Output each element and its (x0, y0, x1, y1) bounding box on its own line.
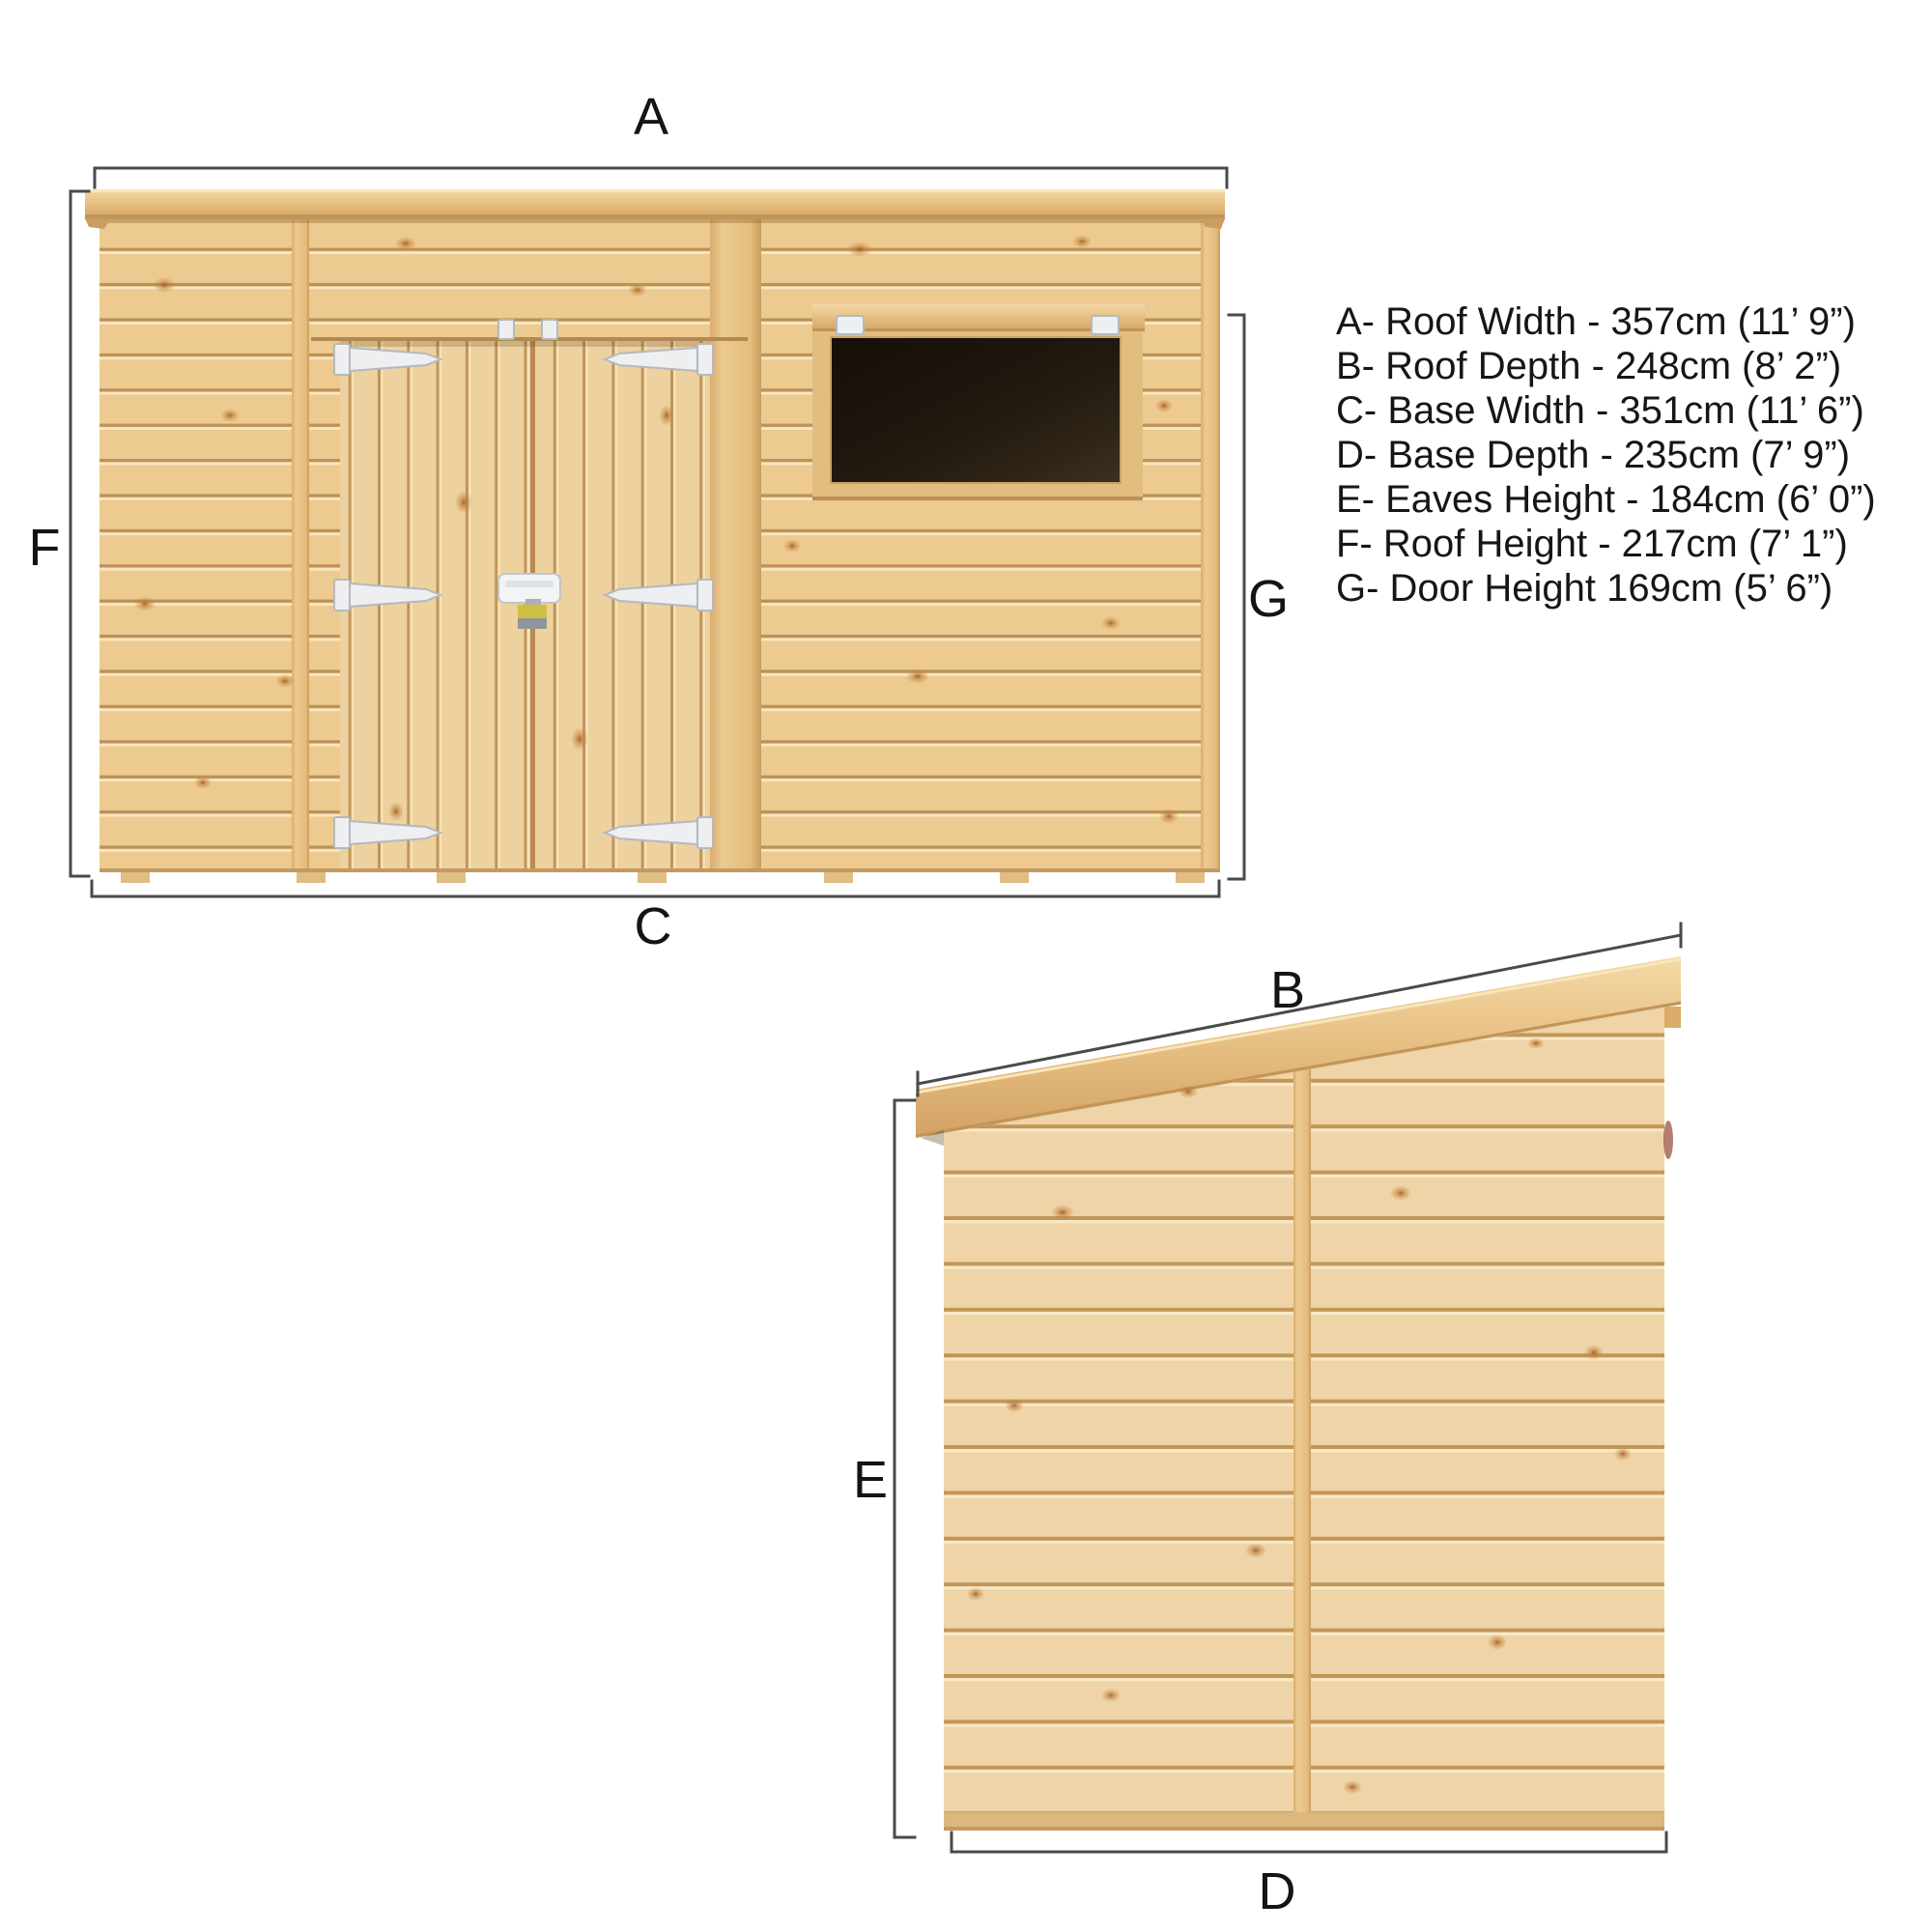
side-roof-right-endcap (1664, 1007, 1681, 1028)
front-cladding-above-doors (340, 218, 710, 340)
label-d: D (1259, 1862, 1296, 1920)
shed-dimension-diagram: A F C G (0, 0, 1932, 1932)
dimension-line-c (92, 881, 1219, 896)
front-left-jamb-trim (292, 218, 309, 872)
fascia-bottom-edge (85, 214, 1225, 219)
legend-line-door-height: G- Door Height 169cm (5’ 6”) (1336, 567, 1833, 610)
padlock-body-grey (518, 618, 547, 629)
door-clip-right (542, 320, 557, 339)
hinge-plate (697, 344, 713, 375)
dimension-line-g (1229, 315, 1244, 879)
door-clip-left (498, 320, 514, 339)
double-doors (311, 320, 748, 872)
hinge-plate (697, 580, 713, 611)
legend-line-base-depth: D- Base Depth - 235cm (7’ 9”) (1336, 434, 1850, 476)
hasp-shadow (505, 581, 554, 587)
dimension-line-a (95, 168, 1227, 187)
front-window (812, 304, 1145, 500)
label-g: G (1248, 570, 1289, 628)
front-floor-bearers (99, 868, 1220, 883)
bearer-tab (437, 872, 466, 883)
legend-line-roof-depth: B- Roof Depth - 248cm (8’ 2”) (1336, 345, 1841, 387)
padlock-shackle (526, 599, 541, 606)
window-glass (831, 337, 1121, 483)
front-narrow-cladding-strip (309, 218, 340, 872)
label-e: E (853, 1451, 888, 1509)
front-elevation (85, 189, 1225, 883)
label-f: F (29, 519, 61, 577)
dimension-line-d (952, 1833, 1666, 1852)
front-right-corner-trim (1201, 218, 1220, 872)
door-header-line (311, 337, 748, 341)
front-right-jamb-trim (710, 218, 761, 872)
window-clip-right (1092, 316, 1119, 334)
label-b: B (1270, 961, 1305, 1019)
hinge-plate (334, 817, 350, 848)
bearer-tab (1000, 872, 1029, 883)
hasp-plate (498, 574, 560, 603)
hinge-plate (334, 344, 350, 375)
bearer-tab (638, 872, 667, 883)
bearer-tab (1176, 872, 1205, 883)
padlock-body-yellow (518, 605, 547, 618)
fascia-top-highlight (85, 189, 1225, 192)
window-clip-left (837, 316, 864, 334)
side-elevation (916, 956, 1681, 1831)
hinge-plate (697, 817, 713, 848)
bearer-tab (824, 872, 853, 883)
door-top-shadow (340, 341, 710, 347)
fascia-board (85, 189, 1225, 218)
dimension-line-e (895, 1100, 915, 1837)
bearer-tab (121, 872, 150, 883)
side-base-shadow (944, 1827, 1664, 1831)
side-corner-knot (1663, 1121, 1673, 1159)
window-sill-shadow (812, 497, 1143, 500)
dimension-legend: A- Roof Width - 357cm (11’ 9”) B- Roof D… (1336, 300, 1876, 610)
dimension-line-f (71, 191, 89, 876)
front-wall-left-cladding (99, 218, 292, 872)
legend-line-base-width: C- Base Width - 351cm (11’ 6”) (1336, 389, 1864, 432)
label-a: A (634, 88, 668, 146)
label-c: C (635, 897, 672, 955)
hinge-plate (334, 580, 350, 611)
legend-line-roof-height: F- Roof Height - 217cm (7’ 1”) (1336, 523, 1848, 565)
bearer-tab (297, 872, 326, 883)
side-vertical-batten (1293, 1063, 1311, 1831)
legend-line-eaves-height: E- Eaves Height - 184cm (6’ 0”) (1336, 478, 1876, 521)
legend-line-roof-width: A- Roof Width - 357cm (11’ 9”) (1336, 300, 1856, 343)
front-base-shadow (99, 868, 1220, 872)
